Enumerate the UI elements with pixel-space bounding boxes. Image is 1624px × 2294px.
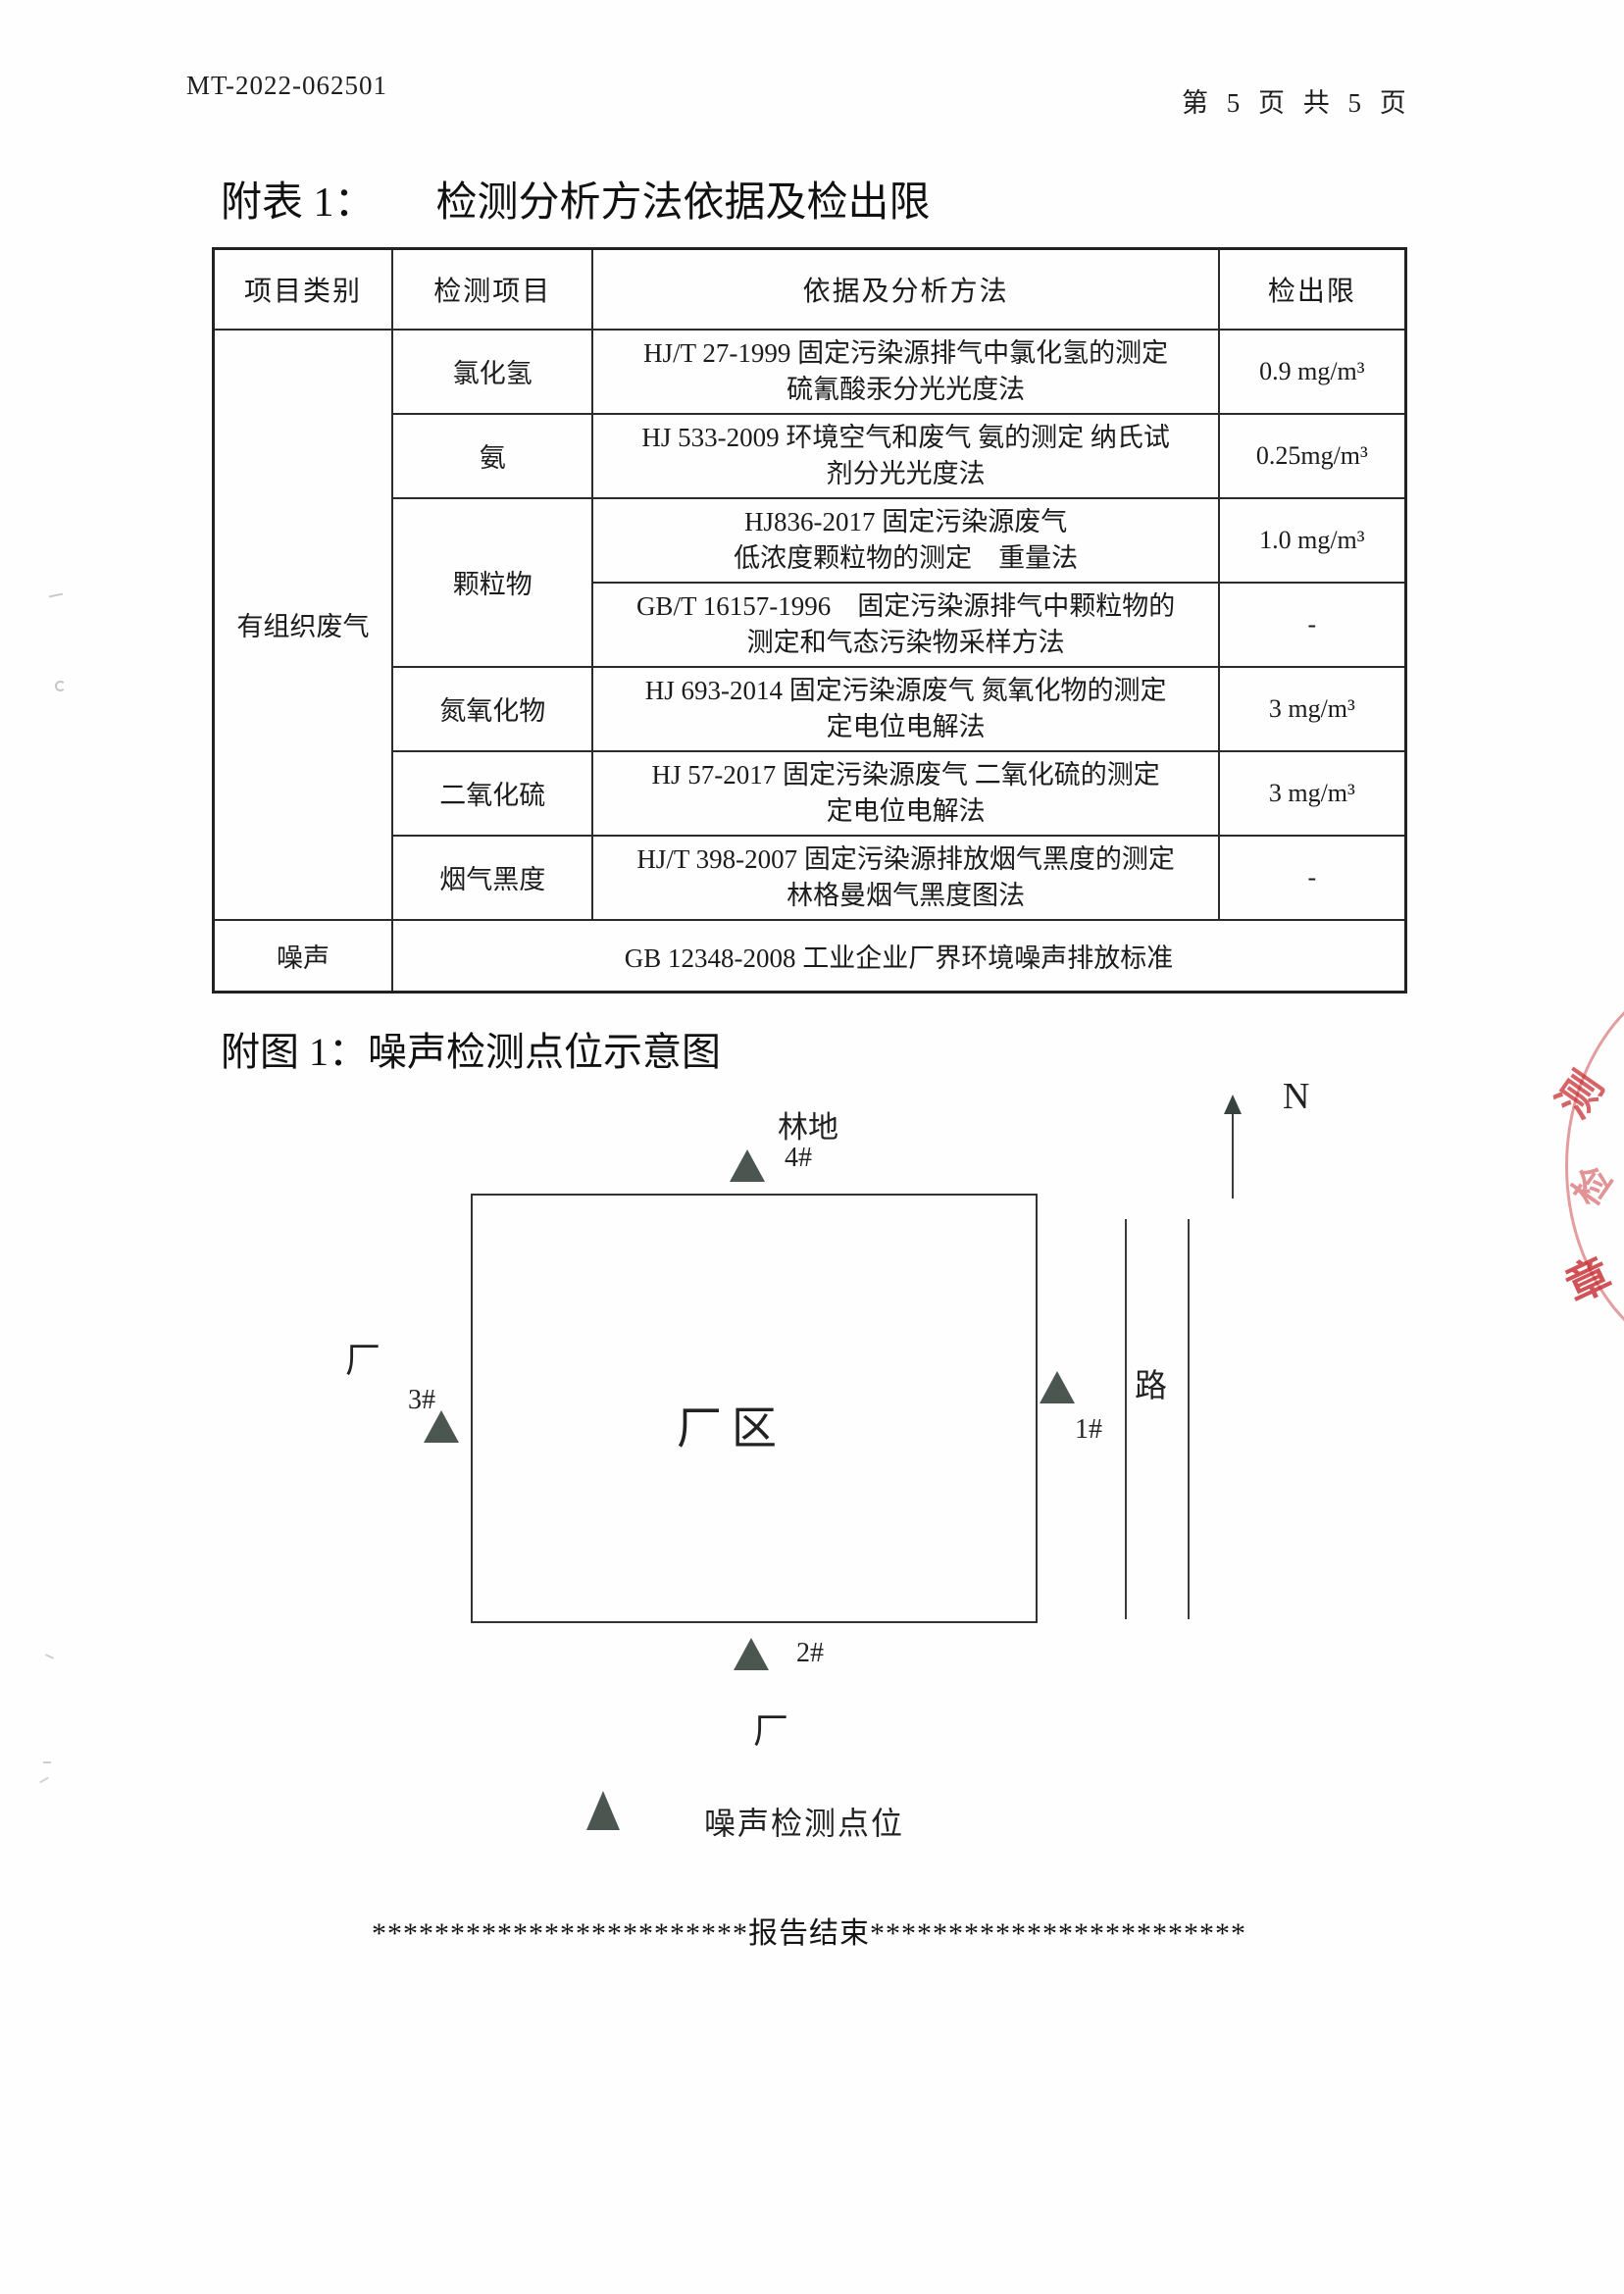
col-header-method: 依据及分析方法 — [592, 249, 1218, 330]
point-1-label: 1# — [1075, 1414, 1102, 1446]
page-indicator: 第 5 页 共 5 页 — [1182, 81, 1412, 120]
report-page: MT-2022-062501 第 5 页 共 5 页 附表 1：检测分析方法依据… — [0, 0, 1624, 2294]
col-header-limit: 检出限 — [1219, 249, 1406, 330]
scan-artifact — [55, 681, 66, 691]
noise-point-4-marker — [730, 1149, 765, 1182]
table-title-text: 检测分析方法依据及检出限 — [436, 180, 931, 226]
noise-category-cell: 噪声 — [214, 920, 393, 993]
limit-cell: - — [1219, 583, 1406, 667]
road-line-left — [1125, 1219, 1127, 1619]
road-label: 路 — [1135, 1359, 1167, 1406]
noise-point-1-marker — [1040, 1371, 1075, 1403]
limit-cell: 3 mg/m³ — [1219, 667, 1406, 751]
legend-noise-point-icon — [586, 1791, 620, 1830]
table-row: 氨 HJ 533-2009 环境空气和废气 氨的测定 纳氏试 剂分光光度法 0.… — [214, 414, 1406, 498]
red-seal-stamp: 测 检 章 — [1542, 998, 1624, 1324]
legend-label: 噪声检测点位 — [704, 1799, 904, 1844]
col-header-category: 项目类别 — [214, 249, 393, 330]
item-cell: 二氧化硫 — [392, 751, 592, 836]
limit-cell: 1.0 mg/m³ — [1219, 498, 1406, 583]
method-cell: GB/T 16157-1996 固定污染源排气中颗粒物的 测定和气态污染物采样方… — [592, 583, 1218, 667]
method-cell: HJ/T 27-1999 固定污染源排气中氯化氢的测定 硫氰酸汞分光光度法 — [592, 330, 1218, 414]
item-cell: 氮氧化物 — [392, 667, 592, 751]
limit-cell: 3 mg/m³ — [1219, 751, 1406, 836]
table-title-prefix: 附表 1： — [221, 180, 376, 226]
factory-area-label: 厂区 — [677, 1393, 787, 1457]
figure-title: 附图 1：噪声检测点位示意图 — [221, 1020, 721, 1077]
item-cell: 氨 — [392, 414, 592, 498]
scan-artifact — [39, 1777, 49, 1784]
point-4-label: 4# — [785, 1143, 812, 1174]
limit-cell: - — [1219, 836, 1406, 920]
forest-label: 林地 — [778, 1102, 838, 1147]
neighbor-factory-bottom-label: 厂 — [753, 1703, 788, 1754]
category-cell: 有组织废气 — [214, 330, 393, 920]
item-cell: 烟气黑度 — [392, 836, 592, 920]
noise-point-2-marker — [734, 1638, 769, 1670]
neighbor-factory-left-label: 厂 — [345, 1332, 381, 1383]
table-header-row: 项目类别 检测项目 依据及分析方法 检出限 — [214, 249, 1406, 330]
point-2-label: 2# — [796, 1638, 824, 1669]
methods-table: 项目类别 检测项目 依据及分析方法 检出限 有组织废气 氯化氢 HJ/T 27-… — [212, 247, 1407, 994]
table-row: 二氧化硫 HJ 57-2017 固定污染源废气 二氧化硫的测定 定电位电解法 3… — [214, 751, 1406, 836]
method-cell: HJ 57-2017 固定污染源废气 二氧化硫的测定 定电位电解法 — [592, 751, 1218, 836]
doc-number: MT-2022-062501 — [186, 71, 387, 101]
scan-artifact — [45, 1654, 54, 1659]
item-cell: 颗粒物 — [392, 498, 592, 667]
method-cell: HJ 693-2014 固定污染源废气 氮氧化物的测定 定电位电解法 — [592, 667, 1218, 751]
report-end-marker: ************************报告结束************… — [226, 1909, 1393, 1952]
item-cell: 氯化氢 — [392, 330, 592, 414]
method-cell: HJ/T 398-2007 固定污染源排放烟气黑度的测定 林格曼烟气黑度图法 — [592, 836, 1218, 920]
road-line-right — [1188, 1219, 1190, 1619]
table-row: 烟气黑度 HJ/T 398-2007 固定污染源排放烟气黑度的测定 林格曼烟气黑… — [214, 836, 1406, 920]
table-row: 有组织废气 氯化氢 HJ/T 27-1999 固定污染源排气中氯化氢的测定 硫氰… — [214, 330, 1406, 414]
table-title: 附表 1：检测分析方法依据及检出限 — [221, 169, 931, 229]
col-header-item: 检测项目 — [392, 249, 592, 330]
method-cell: HJ 533-2009 环境空气和废气 氨的测定 纳氏试 剂分光光度法 — [592, 414, 1218, 498]
limit-cell: 0.25mg/m³ — [1219, 414, 1406, 498]
table-row-noise: 噪声 GB 12348-2008 工业企业厂界环境噪声排放标准 — [214, 920, 1406, 993]
table-row: 氮氧化物 HJ 693-2014 固定污染源废气 氮氧化物的测定 定电位电解法 … — [214, 667, 1406, 751]
method-cell: HJ836-2017 固定污染源废气 低浓度颗粒物的测定 重量法 — [592, 498, 1218, 583]
north-arrow-head-icon — [1224, 1095, 1242, 1114]
limit-cell: 0.9 mg/m³ — [1219, 330, 1406, 414]
north-label: N — [1283, 1075, 1309, 1118]
scan-artifact — [43, 1761, 51, 1763]
noise-standard-cell: GB 12348-2008 工业企业厂界环境噪声排放标准 — [392, 920, 1405, 993]
north-arrow-shaft — [1232, 1112, 1234, 1198]
scan-artifact — [49, 593, 63, 598]
noise-point-3-marker — [424, 1410, 459, 1443]
table-row: 颗粒物 HJ836-2017 固定污染源废气 低浓度颗粒物的测定 重量法 1.0… — [214, 498, 1406, 583]
